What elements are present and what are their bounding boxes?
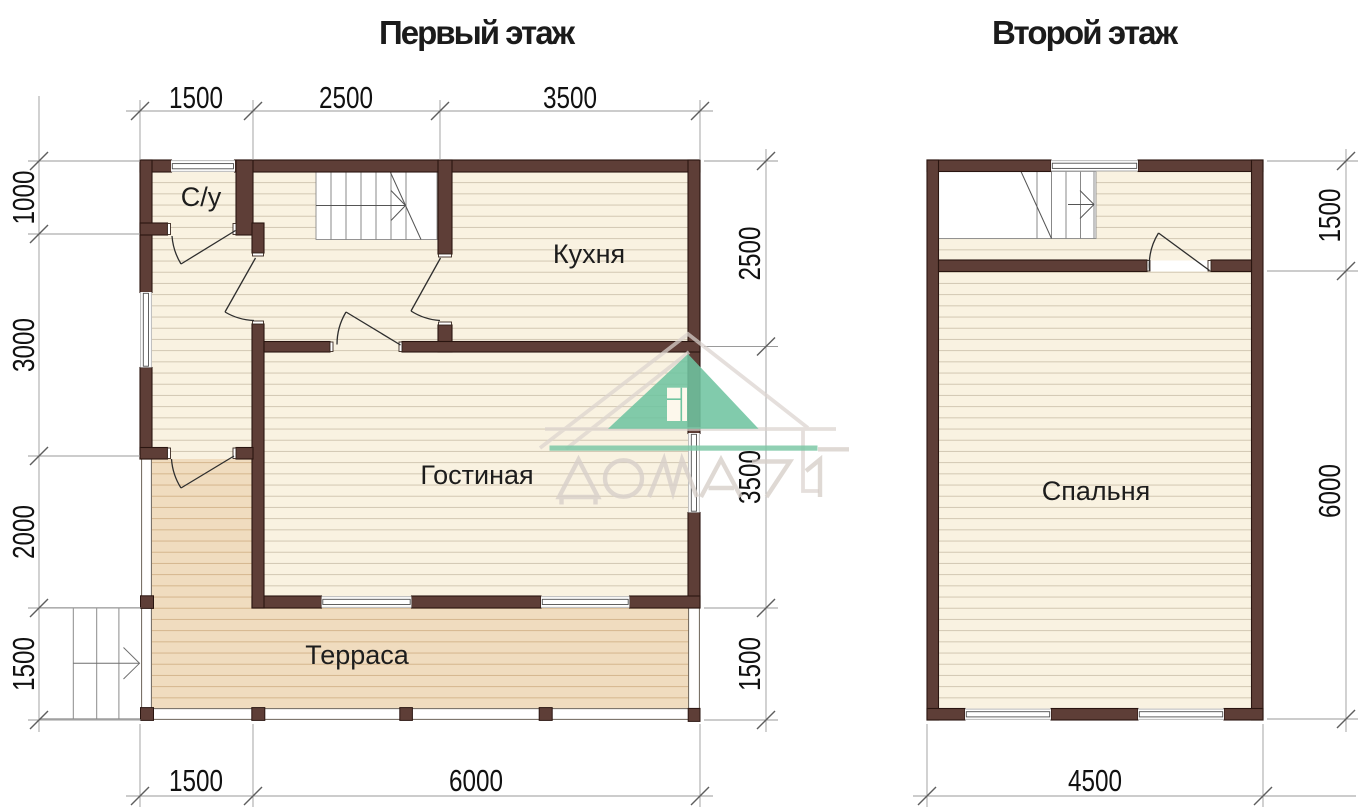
svg-text:6000: 6000	[449, 763, 503, 798]
svg-text:Второй этаж: Второй этаж	[992, 14, 1179, 51]
svg-text:1500: 1500	[169, 80, 223, 115]
svg-text:1000: 1000	[6, 171, 41, 225]
svg-text:Кухня: Кухня	[553, 239, 625, 269]
svg-text:С/у: С/у	[181, 182, 222, 212]
svg-text:Спальня: Спальня	[1042, 476, 1151, 506]
svg-text:Первый этаж: Первый этаж	[379, 14, 576, 51]
svg-text:1500: 1500	[169, 763, 223, 798]
svg-text:4500: 4500	[1068, 763, 1122, 798]
svg-text:3500: 3500	[732, 450, 767, 504]
svg-text:2500: 2500	[319, 80, 373, 115]
svg-text:6000: 6000	[1312, 464, 1347, 518]
svg-text:1500: 1500	[732, 637, 767, 691]
svg-text:1500: 1500	[6, 637, 41, 691]
svg-text:3000: 3000	[6, 318, 41, 372]
svg-text:2000: 2000	[6, 505, 41, 559]
svg-text:Терраса: Терраса	[305, 640, 410, 670]
svg-text:Гостиная: Гостиная	[420, 460, 533, 490]
svg-text:1500: 1500	[1312, 189, 1347, 243]
svg-text:3500: 3500	[543, 80, 597, 115]
svg-text:2500: 2500	[732, 227, 767, 281]
